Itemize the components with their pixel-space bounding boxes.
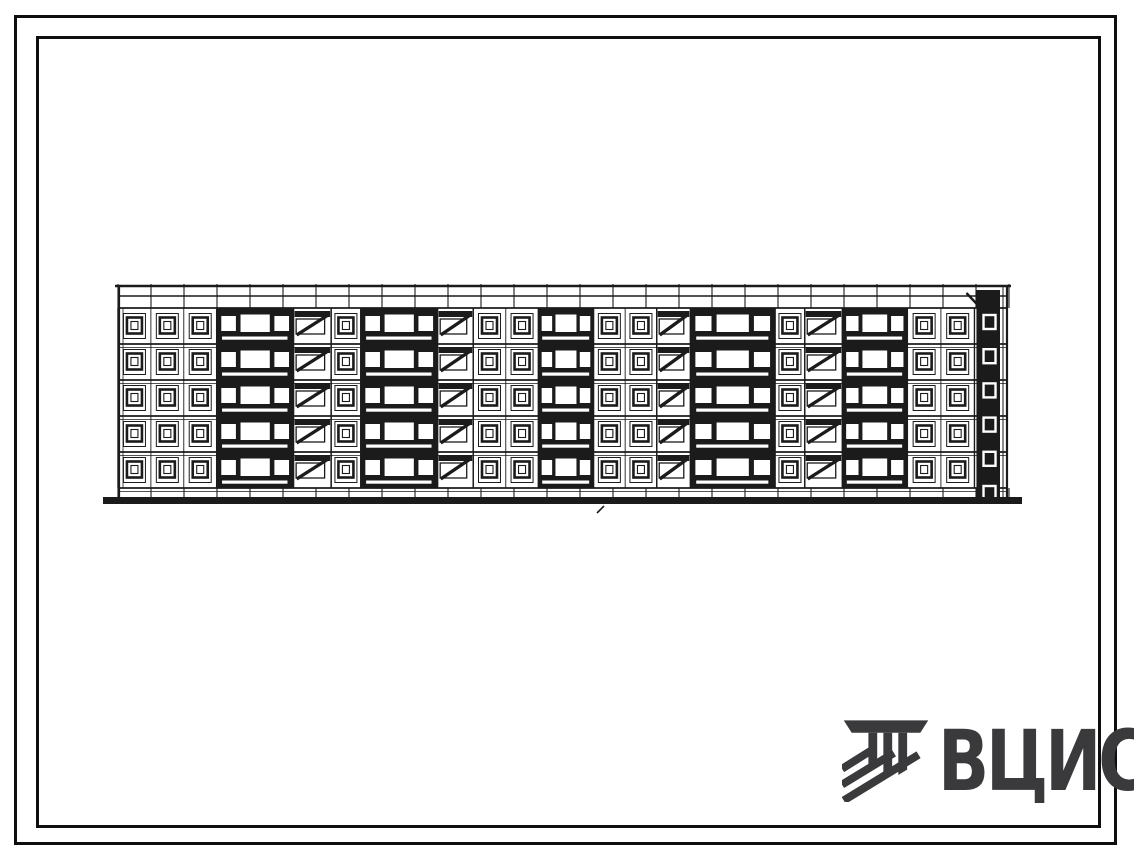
logo: ВЦИС bbox=[842, 718, 1134, 804]
vcis-hatched-emblem-icon bbox=[842, 718, 930, 802]
vcis-logo-text: ВЦИС bbox=[938, 718, 1134, 804]
